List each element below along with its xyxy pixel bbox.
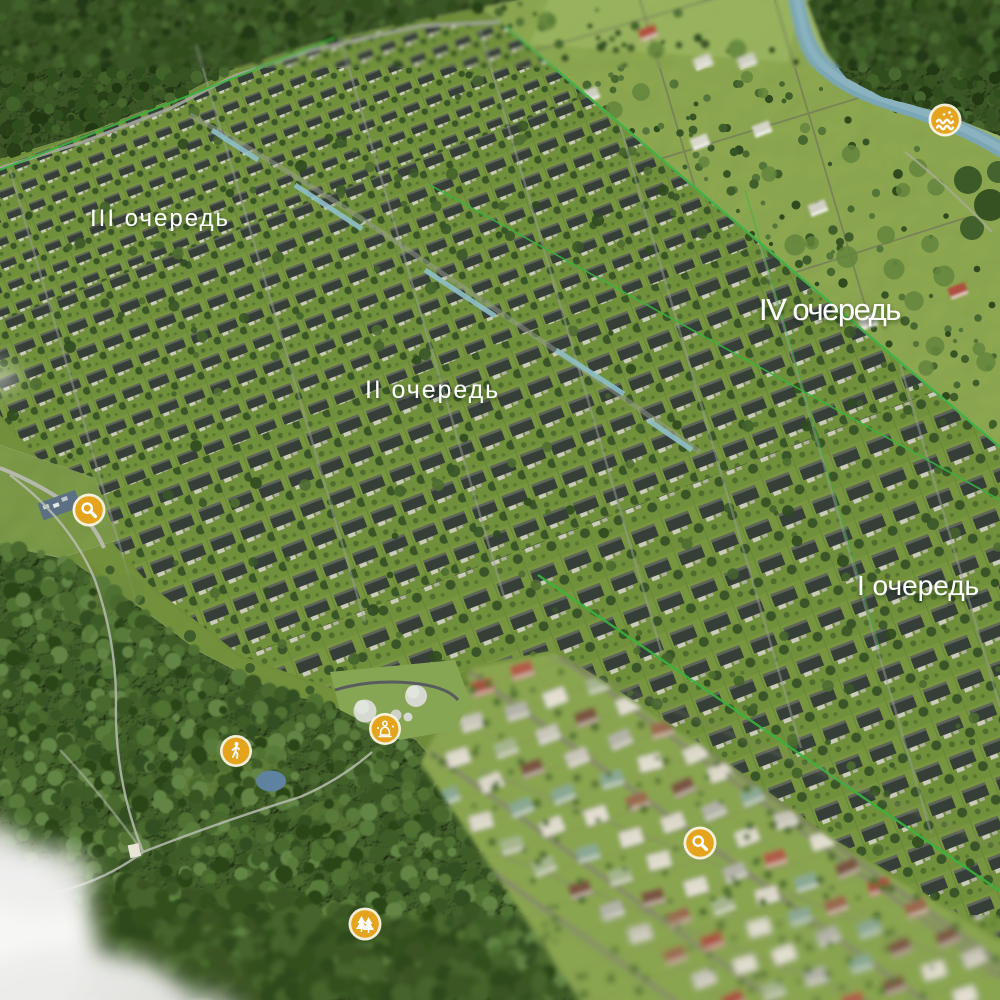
svg-text:II очередь: II очередь [365, 376, 500, 404]
svg-text:I очередь: I очередь [857, 570, 979, 601]
svg-text:IV очередь: IV очередь [759, 292, 900, 327]
svg-text:III очередь: III очередь [90, 205, 230, 232]
